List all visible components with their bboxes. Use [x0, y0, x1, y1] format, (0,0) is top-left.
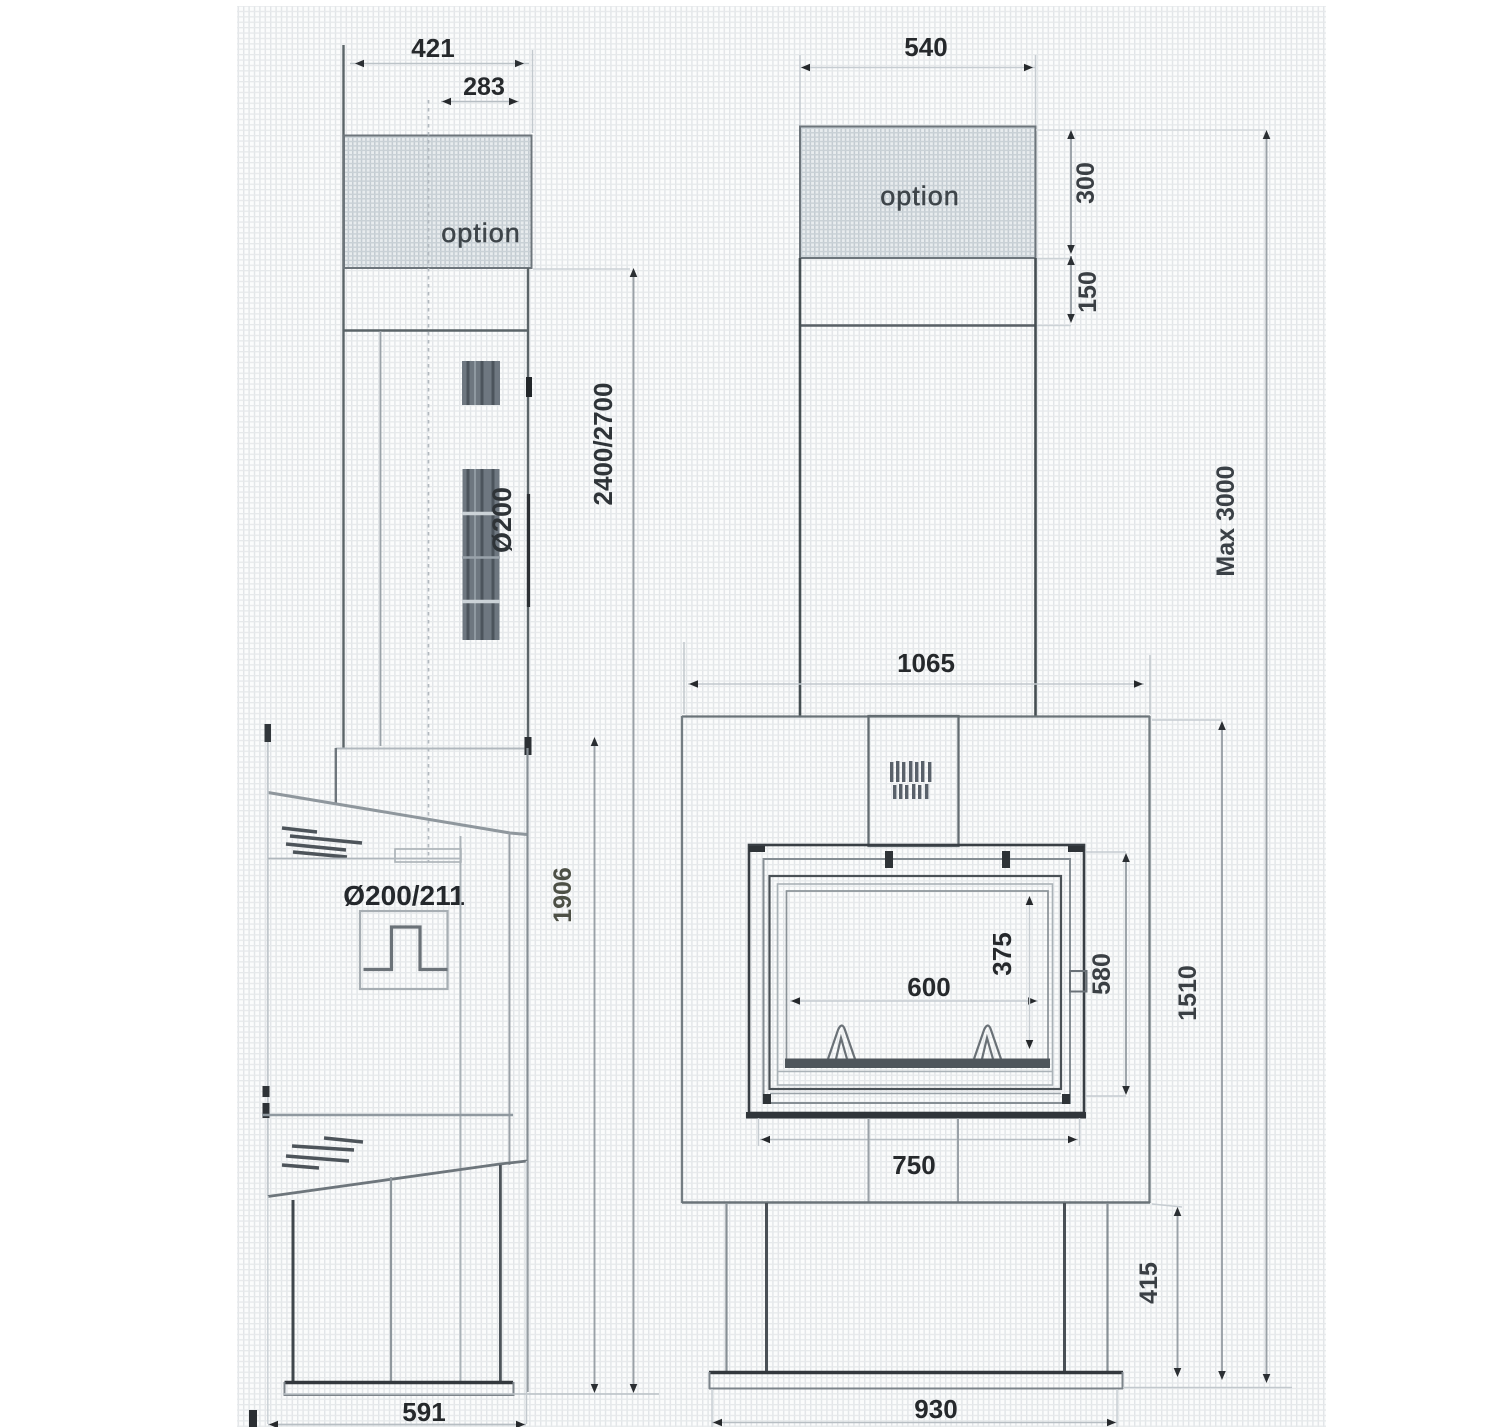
svg-text:375: 375	[987, 932, 1017, 975]
svg-text:150: 150	[1074, 271, 1102, 313]
svg-text:283: 283	[463, 73, 505, 101]
svg-text:421: 421	[411, 33, 454, 63]
svg-text:option: option	[441, 218, 521, 248]
svg-text:591: 591	[402, 1397, 445, 1427]
svg-text:540: 540	[904, 32, 947, 62]
svg-text:415: 415	[1135, 1262, 1163, 1304]
svg-text:1510: 1510	[1174, 965, 1202, 1021]
svg-text:2400/2700: 2400/2700	[588, 383, 618, 506]
svg-text:580: 580	[1088, 953, 1116, 995]
svg-text:Max 3000: Max 3000	[1212, 465, 1240, 576]
svg-text:Ø200: Ø200	[487, 487, 517, 553]
svg-text:930: 930	[914, 1394, 957, 1424]
svg-text:1906: 1906	[549, 867, 577, 923]
svg-text:1065: 1065	[897, 648, 955, 678]
svg-text:300: 300	[1072, 162, 1100, 204]
svg-text:Ø200/211: Ø200/211	[343, 880, 464, 911]
svg-text:option: option	[880, 181, 960, 211]
svg-text:600: 600	[907, 972, 950, 1002]
svg-text:750: 750	[892, 1150, 935, 1180]
